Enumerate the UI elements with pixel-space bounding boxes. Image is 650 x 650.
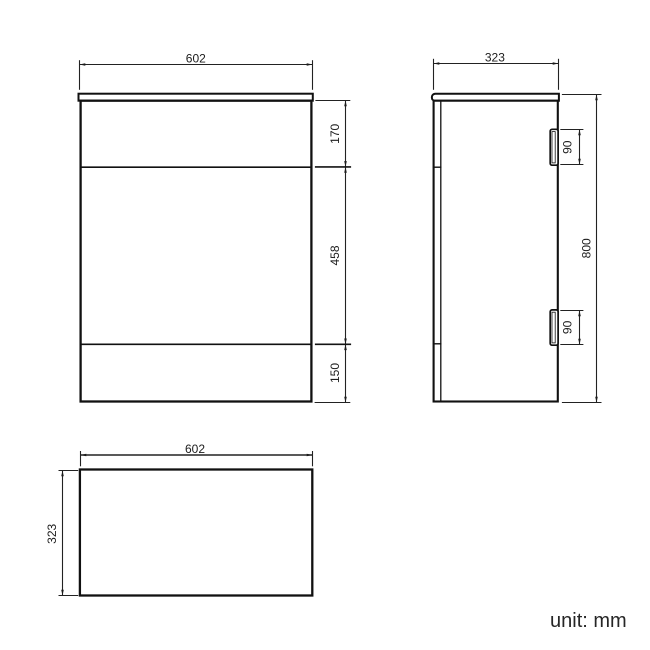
- svg-text:unit: mm: unit: mm: [550, 610, 627, 632]
- svg-text:602: 602: [185, 442, 205, 456]
- svg-text:800: 800: [579, 238, 593, 258]
- svg-text:90: 90: [560, 320, 574, 334]
- svg-text:458: 458: [328, 245, 342, 265]
- svg-text:150: 150: [328, 363, 342, 383]
- svg-text:323: 323: [485, 51, 505, 65]
- svg-text:323: 323: [45, 523, 59, 543]
- svg-text:170: 170: [328, 123, 342, 143]
- svg-text:90: 90: [560, 140, 574, 154]
- svg-text:602: 602: [186, 52, 206, 66]
